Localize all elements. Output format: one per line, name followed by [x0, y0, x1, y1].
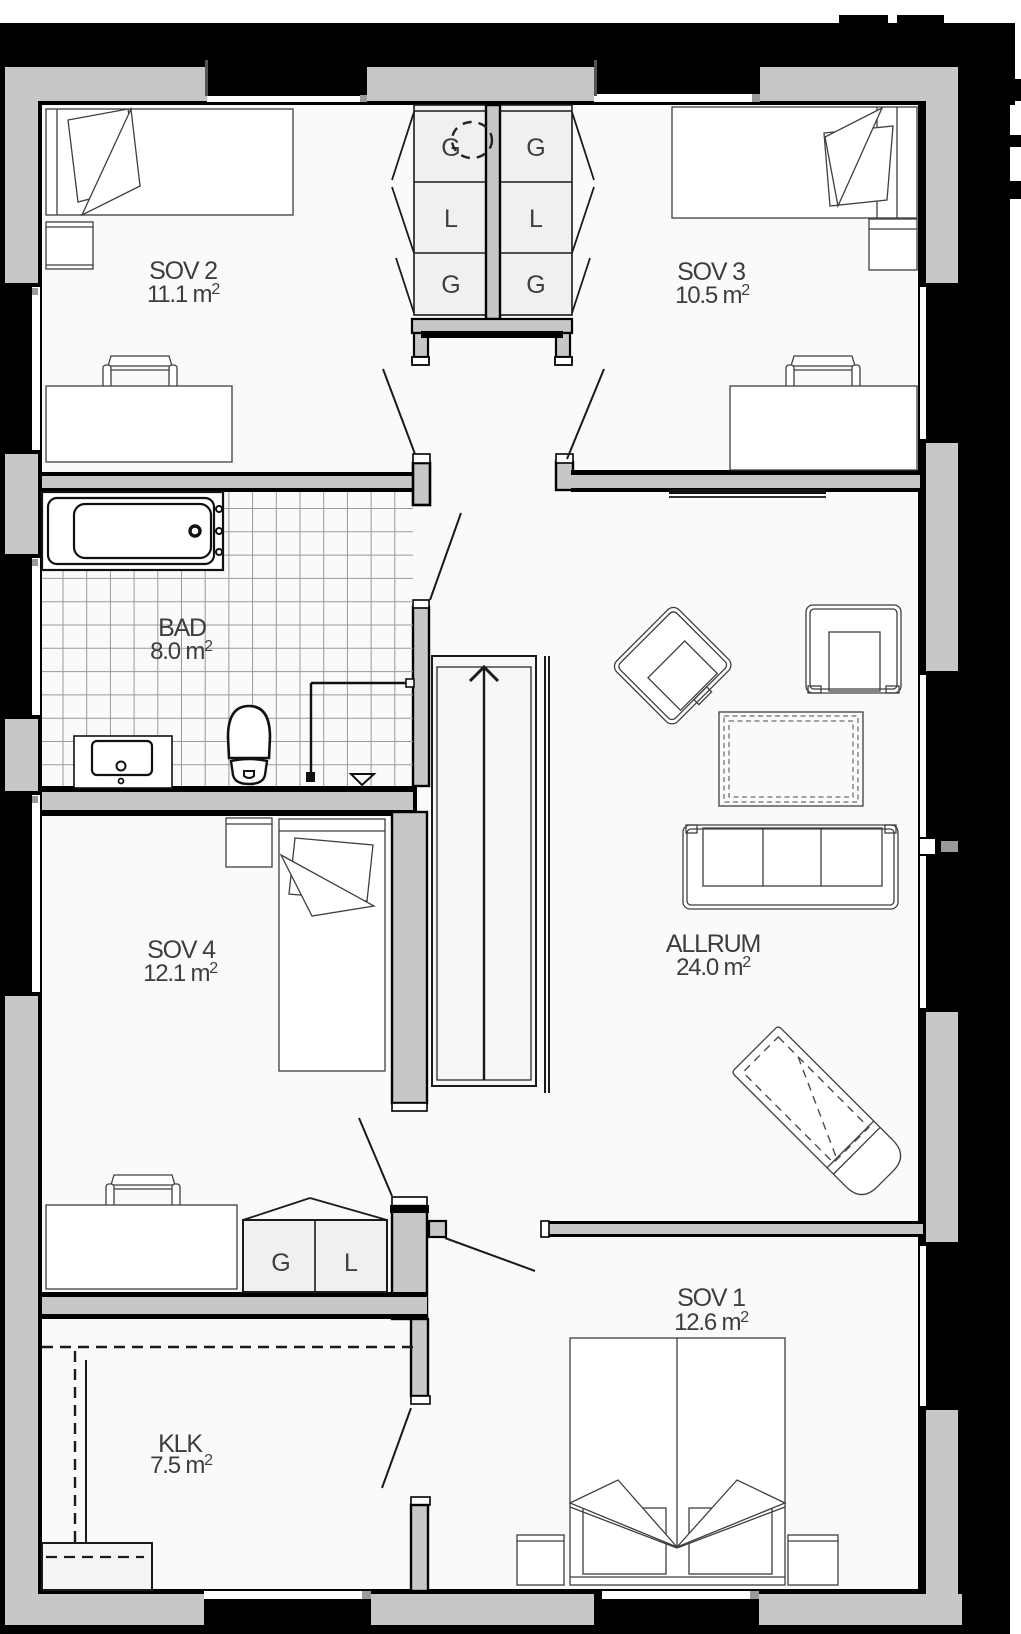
svg-text:7.5 m2: 7.5 m2 [150, 1452, 213, 1479]
svg-text:G: G [441, 271, 460, 299]
svg-text:11.1 m2: 11.1 m2 [147, 281, 220, 308]
svg-text:12.6 m2: 12.6 m2 [674, 1309, 749, 1336]
svg-text:G: G [526, 134, 545, 162]
svg-text:L: L [344, 1249, 358, 1277]
svg-text:8.0 m2: 8.0 m2 [150, 638, 213, 665]
svg-text:G: G [526, 271, 545, 299]
svg-text:L: L [444, 205, 458, 233]
svg-text:12.1 m2: 12.1 m2 [143, 960, 218, 987]
svg-text:G: G [441, 134, 460, 162]
svg-text:L: L [529, 205, 543, 233]
svg-text:SOV 1: SOV 1 [677, 1284, 745, 1312]
svg-text:10.5 m2: 10.5 m2 [675, 282, 750, 309]
svg-text:24.0 m2: 24.0 m2 [676, 954, 751, 981]
svg-text:G: G [271, 1249, 290, 1277]
